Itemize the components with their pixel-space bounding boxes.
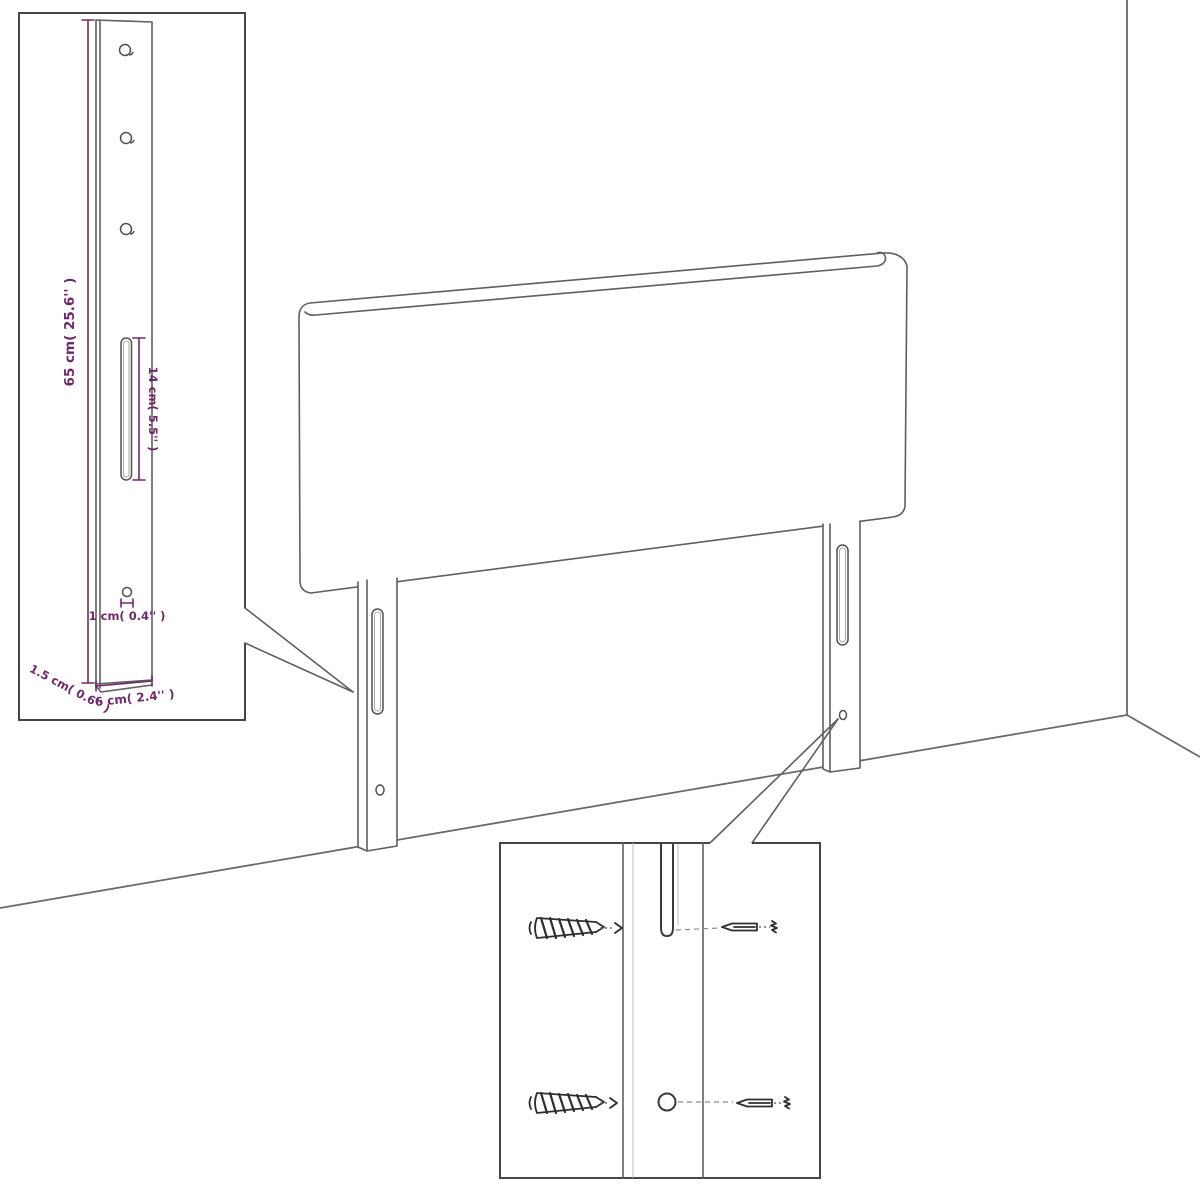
headboard-panel [299,252,907,593]
screw-inset-callout [710,719,838,843]
headboard-outline [299,253,907,593]
callout-line [710,719,838,843]
dimension-label-hole: 1 cm( 0.4'' ) [89,609,166,623]
dimension-label-slot: 14 cm( 5.5'' ) [146,367,160,452]
diagram-canvas: 65 cm( 25.6'' ) 14 cm( 5.5'' ) 1 cm( 0.4… [0,0,1200,1200]
headboard-left-leg [358,573,397,851]
callout-line [752,719,838,843]
screw-detail-inset [500,843,820,1178]
dimension-label-height: 65 cm( 25.6'' ) [62,278,78,387]
headboard-dimension-diagram: 65 cm( 25.6'' ) 14 cm( 5.5'' ) 1 cm( 0.4… [0,0,1200,1200]
